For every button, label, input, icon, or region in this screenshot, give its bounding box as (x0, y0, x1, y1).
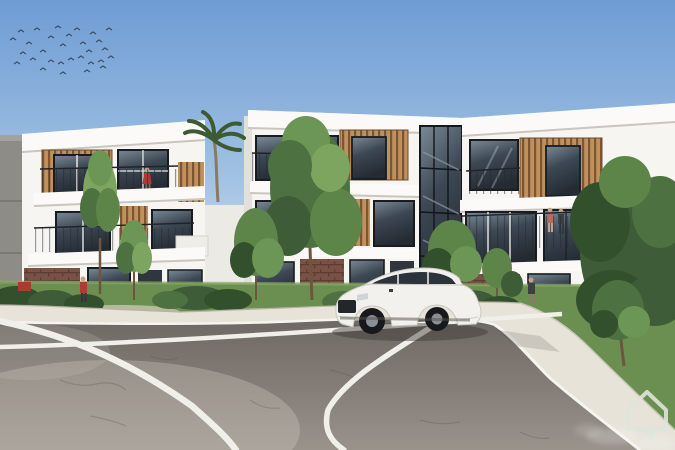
red-bench (18, 282, 31, 291)
window (374, 201, 414, 246)
window (352, 137, 386, 179)
car-mirror (389, 289, 393, 292)
architectural-render (0, 0, 675, 450)
car-grille (338, 300, 356, 313)
window (546, 146, 580, 196)
watermark-blur (574, 424, 602, 436)
render-canvas (0, 0, 675, 450)
car-side-skirt (340, 318, 470, 320)
balcony-railing (466, 168, 520, 194)
